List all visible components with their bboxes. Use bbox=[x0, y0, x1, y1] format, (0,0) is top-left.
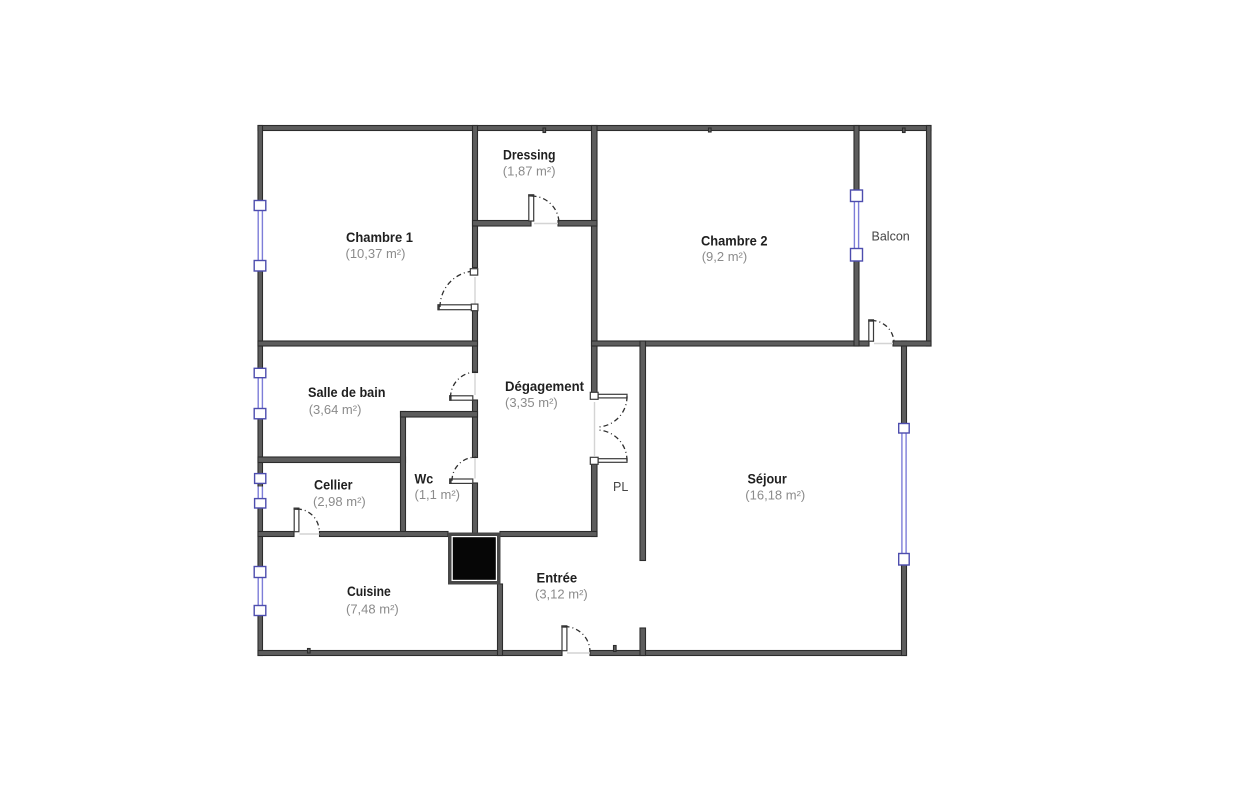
svg-text:Wc: Wc bbox=[415, 472, 434, 487]
svg-text:(16,18 m²): (16,18 m²) bbox=[745, 488, 805, 503]
svg-text:Salle de bain: Salle de bain bbox=[308, 385, 386, 400]
svg-text:(9,2 m²): (9,2 m²) bbox=[702, 249, 748, 264]
svg-text:Cellier: Cellier bbox=[314, 478, 353, 493]
svg-text:PL: PL bbox=[613, 480, 628, 494]
svg-text:Chambre 1: Chambre 1 bbox=[346, 230, 413, 245]
svg-text:Cuisine: Cuisine bbox=[347, 584, 391, 599]
svg-text:(3,35 m²): (3,35 m²) bbox=[505, 395, 558, 410]
svg-text:Balcon: Balcon bbox=[872, 230, 910, 244]
svg-text:(2,98 m²): (2,98 m²) bbox=[313, 494, 366, 509]
svg-text:(3,12 m²): (3,12 m²) bbox=[535, 587, 588, 602]
svg-text:Séjour: Séjour bbox=[748, 472, 788, 487]
svg-text:(10,37 m²): (10,37 m²) bbox=[346, 246, 406, 261]
svg-text:Dégagement: Dégagement bbox=[505, 379, 584, 394]
svg-text:Entrée: Entrée bbox=[537, 571, 578, 586]
svg-text:(1,87 m²): (1,87 m²) bbox=[503, 164, 556, 179]
svg-text:(3,64 m²): (3,64 m²) bbox=[309, 402, 362, 417]
svg-text:(7,48 m²): (7,48 m²) bbox=[346, 602, 399, 617]
svg-text:Chambre 2: Chambre 2 bbox=[701, 234, 768, 249]
svg-text:Dressing: Dressing bbox=[503, 148, 556, 163]
svg-text:(1,1 m²): (1,1 m²) bbox=[415, 487, 461, 502]
